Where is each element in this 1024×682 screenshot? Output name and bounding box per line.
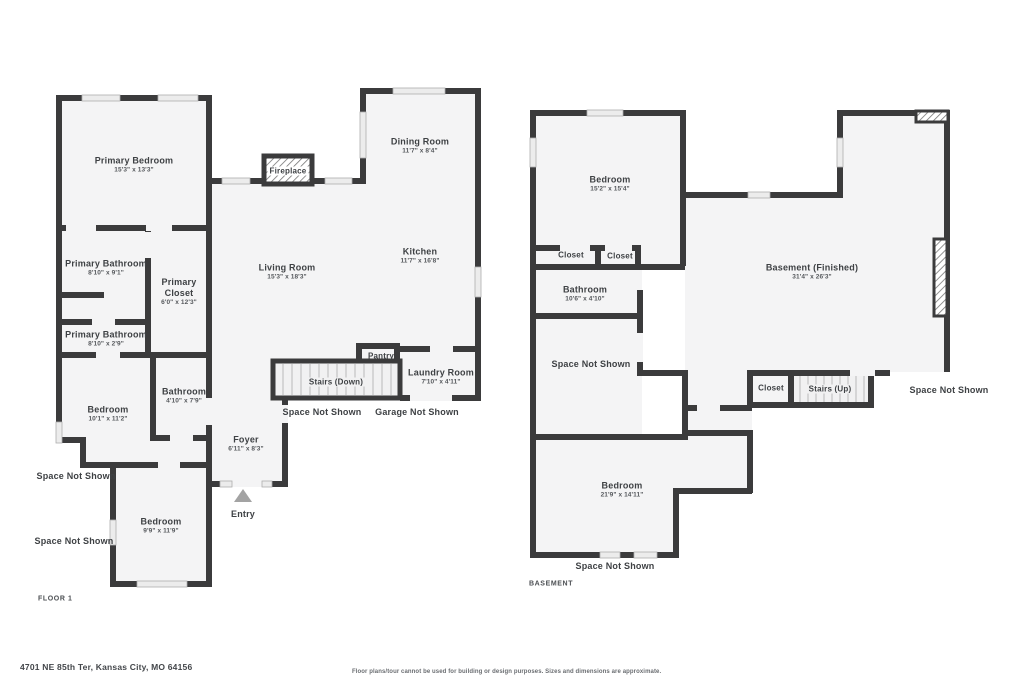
basement-window-top-box — [916, 111, 948, 122]
room-name: Primary Bathroom — [65, 258, 147, 270]
room-label-primary-bathroom-1: Primary Bathroom 8'10" x 9'1" — [65, 258, 147, 279]
room-name: Foyer — [228, 434, 263, 446]
room-dims: 9'9" x 11'9" — [141, 528, 182, 537]
room-label-bathroom: Bathroom 4'10" x 7'9" — [162, 386, 206, 407]
room-label-kitchen: Kitchen 11'7" x 16'8" — [400, 246, 439, 267]
space-not-shown-label: Space Not Shown — [34, 536, 113, 546]
room-name: Primary Bedroom — [95, 155, 174, 167]
room-label-primary-bathroom-2: Primary Bathroom 8'10" x 2'9" — [65, 329, 147, 350]
room-label-basement-bedroom-bottom: Bedroom 21'9" x 14'11" — [601, 480, 644, 501]
room-dims: 31'4" x 26'3" — [766, 274, 858, 283]
garage-not-shown-label: Garage Not Shown — [375, 407, 459, 417]
room-dims: 11'7" x 16'8" — [400, 258, 439, 267]
floorplan-page: Primary Bedroom 15'3" x 13'3" Dining Roo… — [0, 0, 1024, 682]
room-name: Bedroom — [590, 174, 631, 186]
room-dims: 21'9" x 14'11" — [601, 492, 644, 501]
room-label-primary-bedroom: Primary Bedroom 15'3" x 13'3" — [95, 155, 174, 176]
room-name: Living Room — [259, 262, 316, 274]
room-label-living-room: Living Room 15'3" x 18'3" — [259, 262, 316, 283]
floor1-title: FLOOR 1 — [38, 596, 73, 603]
room-label-laundry-room: Laundry Room 7'10" x 4'11" — [408, 367, 474, 388]
room-label-basement-bedroom-top: Bedroom 15'2" x 15'4" — [590, 174, 631, 195]
room-label-basement-finished: Basement (Finished) 31'4" x 26'3" — [766, 262, 858, 283]
space-not-shown-label: Space Not Shown — [36, 471, 115, 481]
room-name: Kitchen — [400, 246, 439, 258]
property-address: 4701 NE 85th Ter, Kansas City, MO 64156 — [20, 662, 192, 672]
space-not-shown-label: Space Not Shown — [282, 407, 361, 417]
room-name: Primary Closet — [149, 277, 209, 299]
closet-label: Closet — [607, 252, 633, 261]
room-dims: 10'1" x 11'2" — [88, 416, 129, 425]
room-dims: 10'6" x 4'10" — [563, 296, 607, 305]
closet-label: Closet — [758, 384, 784, 393]
room-name: Dining Room — [391, 136, 449, 148]
room-dims: 8'10" x 2'9" — [65, 341, 147, 350]
stairs-down-label: Stairs (Down) — [306, 378, 366, 387]
room-dims: 4'10" x 7'9" — [162, 398, 206, 407]
room-dims: 6'11" x 8'3" — [228, 446, 263, 455]
room-dims: 15'3" x 13'3" — [95, 167, 174, 176]
pantry-label: Pantry — [368, 352, 394, 361]
room-dims: 15'3" x 18'3" — [259, 274, 316, 283]
basement-title: BASEMENT — [529, 581, 573, 588]
space-not-shown-label: Space Not Shown — [551, 359, 630, 369]
room-label-bedroom-1: Bedroom 10'1" x 11'2" — [88, 404, 129, 425]
room-label-basement-bathroom: Bathroom 10'6" x 4'10" — [563, 284, 607, 305]
room-name: Bathroom — [563, 284, 607, 296]
room-label-primary-closet: Primary Closet 6'0" x 12'3" — [149, 277, 209, 307]
room-dims: 11'7" x 8'4" — [391, 148, 449, 157]
room-name: Bedroom — [141, 516, 182, 528]
entry-marker-icon — [234, 489, 252, 502]
entry-label: Entry — [231, 509, 255, 519]
room-label-foyer: Foyer 6'11" x 8'3" — [228, 434, 263, 455]
room-name: Bedroom — [88, 404, 129, 416]
stairs-up-label: Stairs (Up) — [806, 385, 855, 394]
room-dims: 15'2" x 15'4" — [590, 186, 631, 195]
room-dims: 7'10" x 4'11" — [408, 379, 474, 388]
room-dims: 6'0" x 12'3" — [149, 298, 209, 307]
room-name: Bathroom — [162, 386, 206, 398]
room-label-bedroom-2: Bedroom 9'9" x 11'9" — [141, 516, 182, 537]
floorplan-drawing — [0, 0, 1024, 682]
room-name: Primary Bathroom — [65, 329, 147, 341]
room-dims: 8'10" x 9'1" — [65, 270, 147, 279]
room-label-dining-room: Dining Room 11'7" x 8'4" — [391, 136, 449, 157]
space-not-shown-label: Space Not Shown — [909, 385, 988, 395]
room-name: Basement (Finished) — [766, 262, 858, 274]
basement-window-right-box — [934, 239, 947, 316]
fireplace-label: Fireplace — [268, 167, 309, 176]
space-not-shown-label: Space Not Shown — [575, 561, 654, 571]
room-name: Bedroom — [601, 480, 644, 492]
disclaimer-text: Floor plans/tour cannot be used for buil… — [352, 669, 661, 675]
room-name: Laundry Room — [408, 367, 474, 379]
closet-label: Closet — [558, 251, 584, 260]
